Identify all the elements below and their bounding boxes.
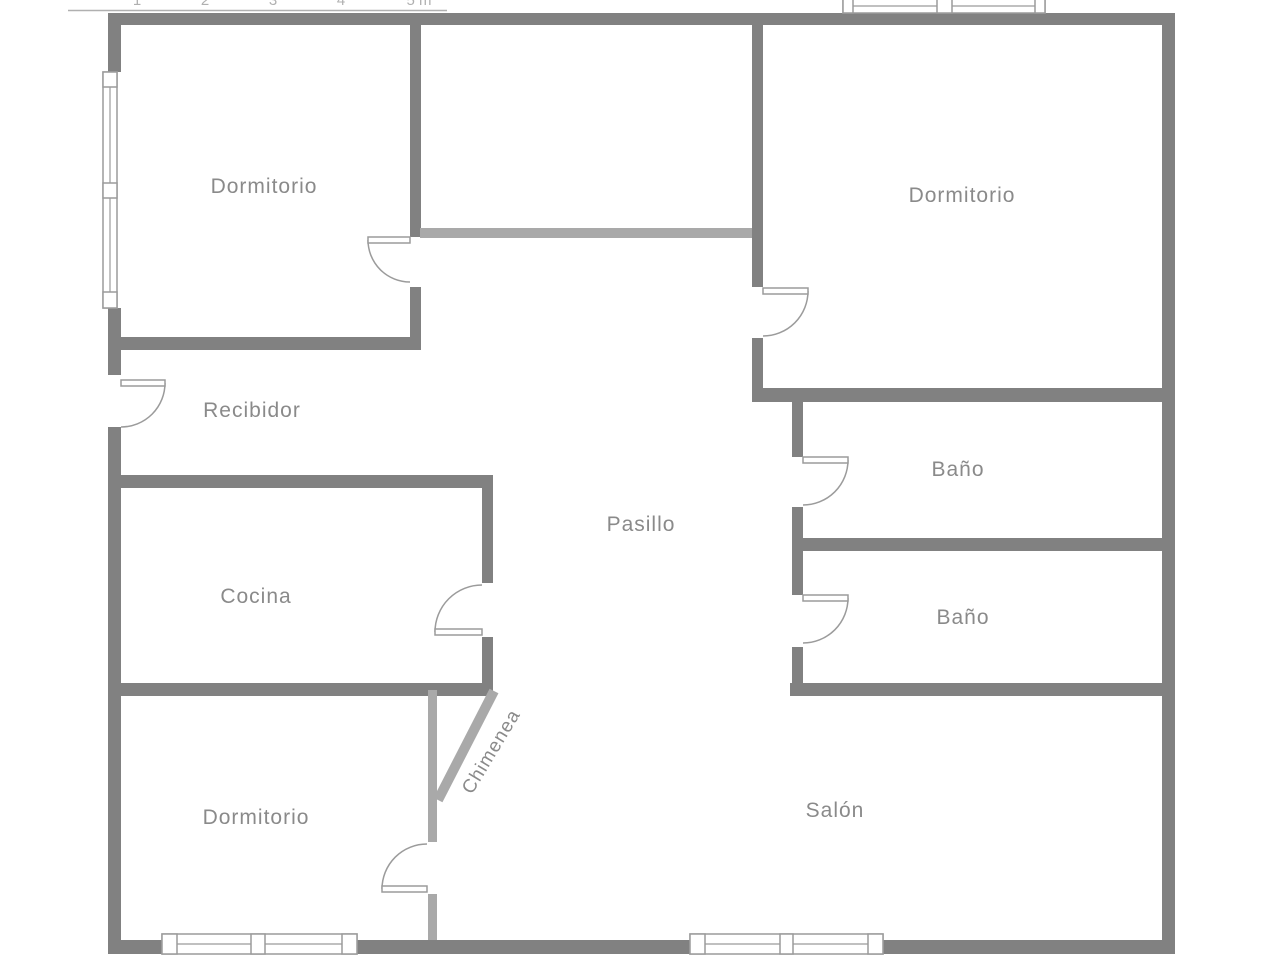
wall-dormitorio-tr-bottom: [752, 388, 1162, 402]
scale-tick-1: 1: [133, 0, 141, 9]
door-cocina: [435, 585, 482, 635]
wall-bano-divider: [792, 538, 1162, 551]
room-label-pasillo: Pasillo: [607, 513, 676, 537]
wall-exterior-right: [1162, 13, 1175, 954]
wall-exterior-left-middle: [108, 308, 121, 375]
wall-dormitorio-tl-right-upper: [410, 25, 421, 237]
scale-tick-4: 4: [337, 0, 345, 9]
wall-bano1-left-lower: [792, 507, 803, 538]
wall-cocina-top: [121, 475, 493, 488]
window-left: [103, 72, 117, 308]
wall-bano2-left-lower: [792, 647, 803, 683]
door-dormitorio-bl: [382, 844, 427, 892]
scale-ruler: 1 2 3 4 5 m: [0, 0, 1280, 12]
wall-exterior-left-upper: [108, 13, 121, 72]
floor-plan-canvas: 1 2 3 4 5 m Dormitorio Dormitorio Recibi…: [0, 0, 1280, 960]
scale-tick-2: 2: [201, 0, 209, 9]
wall-exterior-top: [108, 13, 1175, 25]
scale-tick-5m: 5 m: [406, 0, 431, 9]
door-dormitorio-tl: [368, 237, 410, 282]
wall-bano2-bottom: [790, 683, 1162, 696]
wall-pasillo-top-light: [420, 228, 757, 238]
room-label-bano-2: Baño: [936, 606, 989, 630]
room-label-salon: Salón: [806, 799, 865, 823]
room-label-dormitorio-top-left: Dormitorio: [211, 175, 318, 199]
door-dormitorio-tr: [763, 288, 808, 336]
door-bano2: [803, 595, 848, 643]
door-recibidor: [121, 380, 165, 427]
scale-tick-3: 3: [269, 0, 277, 9]
wall-bano1-left-upper: [792, 402, 803, 457]
wall-dormitorio-tl-bottom: [121, 337, 420, 350]
room-label-dormitorio-top-right: Dormitorio: [909, 184, 1016, 208]
wall-dormitorio-bl-right-lower-light: [428, 894, 437, 940]
room-label-recibidor: Recibidor: [203, 399, 301, 423]
room-label-bano-1: Baño: [931, 458, 984, 482]
wall-bano2-left-upper: [792, 551, 803, 595]
floor-plan-drawing: [0, 0, 1280, 960]
door-bano1: [803, 457, 848, 505]
window-bottom-left: [162, 934, 357, 954]
room-label-dormitorio-bottom-left: Dormitorio: [203, 806, 310, 830]
window-bottom-center: [690, 934, 883, 954]
room-label-cocina: Cocina: [220, 585, 291, 609]
wall-dormitorio-tr-left-upper: [752, 25, 763, 287]
wall-cocina-right-upper: [482, 475, 493, 583]
wall-dormitorio-bl-right-upper-light: [428, 690, 437, 842]
